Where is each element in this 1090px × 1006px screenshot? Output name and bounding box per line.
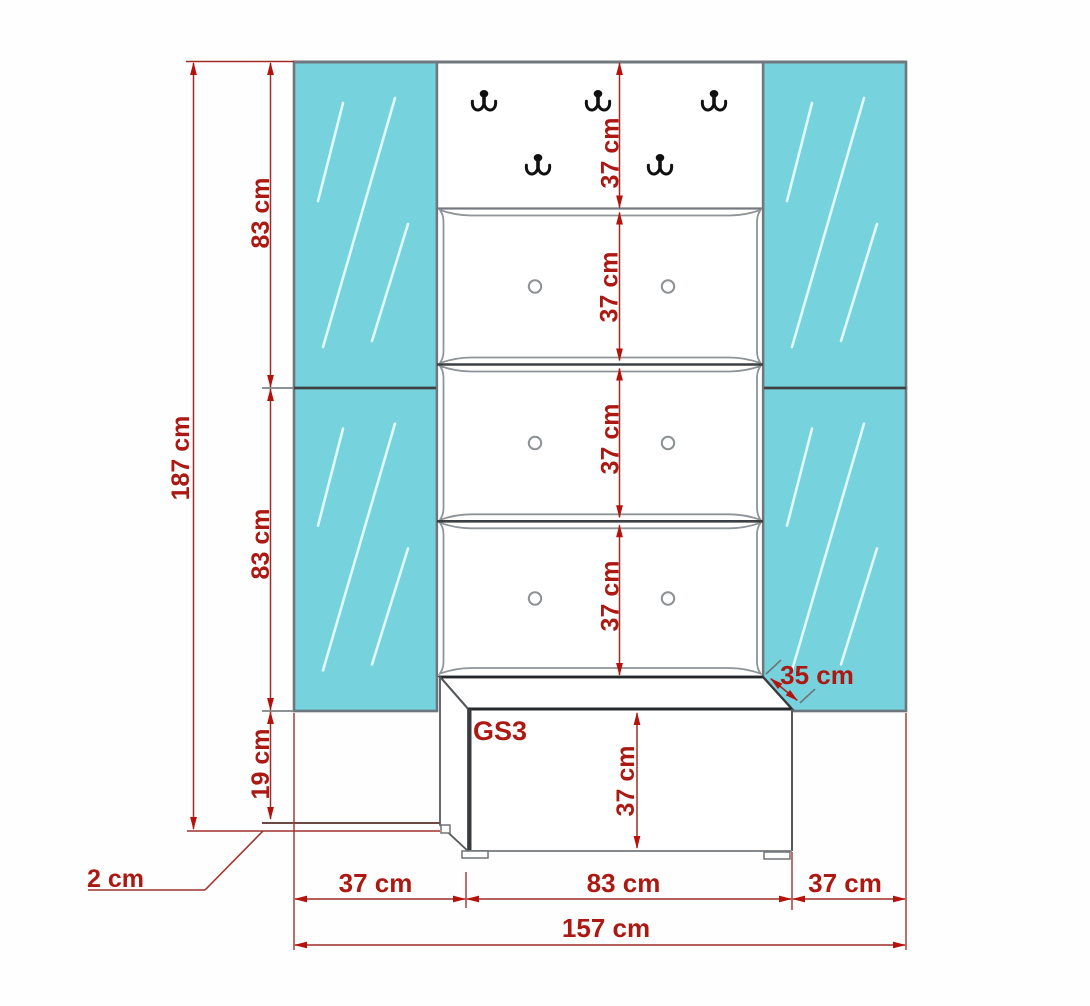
svg-text:GS3: GS3 xyxy=(473,716,527,746)
svg-text:83 cm: 83 cm xyxy=(247,178,275,249)
svg-text:83 cm: 83 cm xyxy=(587,868,661,898)
svg-text:157 cm: 157 cm xyxy=(562,913,650,943)
svg-text:83 cm: 83 cm xyxy=(247,509,275,580)
svg-text:37 cm: 37 cm xyxy=(597,561,625,632)
svg-text:37 cm: 37 cm xyxy=(612,746,640,817)
svg-text:35 cm: 35 cm xyxy=(780,660,854,690)
svg-text:37 cm: 37 cm xyxy=(597,404,625,475)
svg-text:2 cm: 2 cm xyxy=(87,865,144,893)
svg-text:37 cm: 37 cm xyxy=(808,868,882,898)
svg-text:37 cm: 37 cm xyxy=(597,118,625,189)
svg-text:19 cm: 19 cm xyxy=(247,729,275,800)
svg-text:37 cm: 37 cm xyxy=(339,868,413,898)
svg-text:187 cm: 187 cm xyxy=(167,416,195,501)
svg-text:37 cm: 37 cm xyxy=(596,252,624,323)
